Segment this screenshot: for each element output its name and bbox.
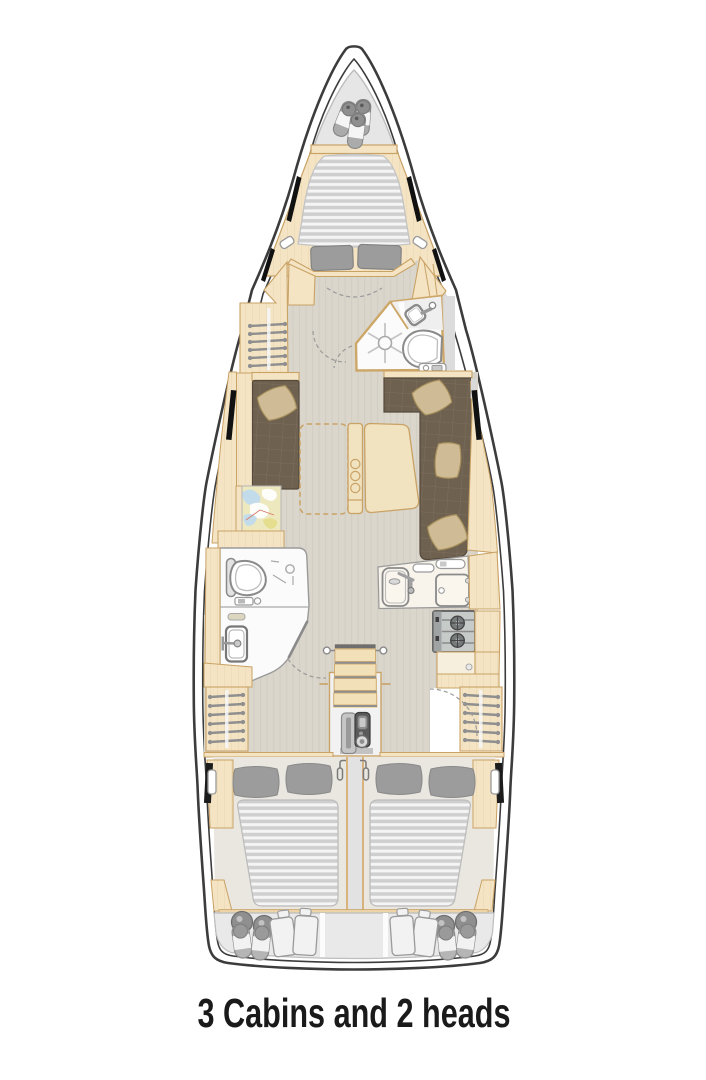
- svg-text:3 Cabins and 2 heads: 3 Cabins and 2 heads: [198, 990, 511, 1036]
